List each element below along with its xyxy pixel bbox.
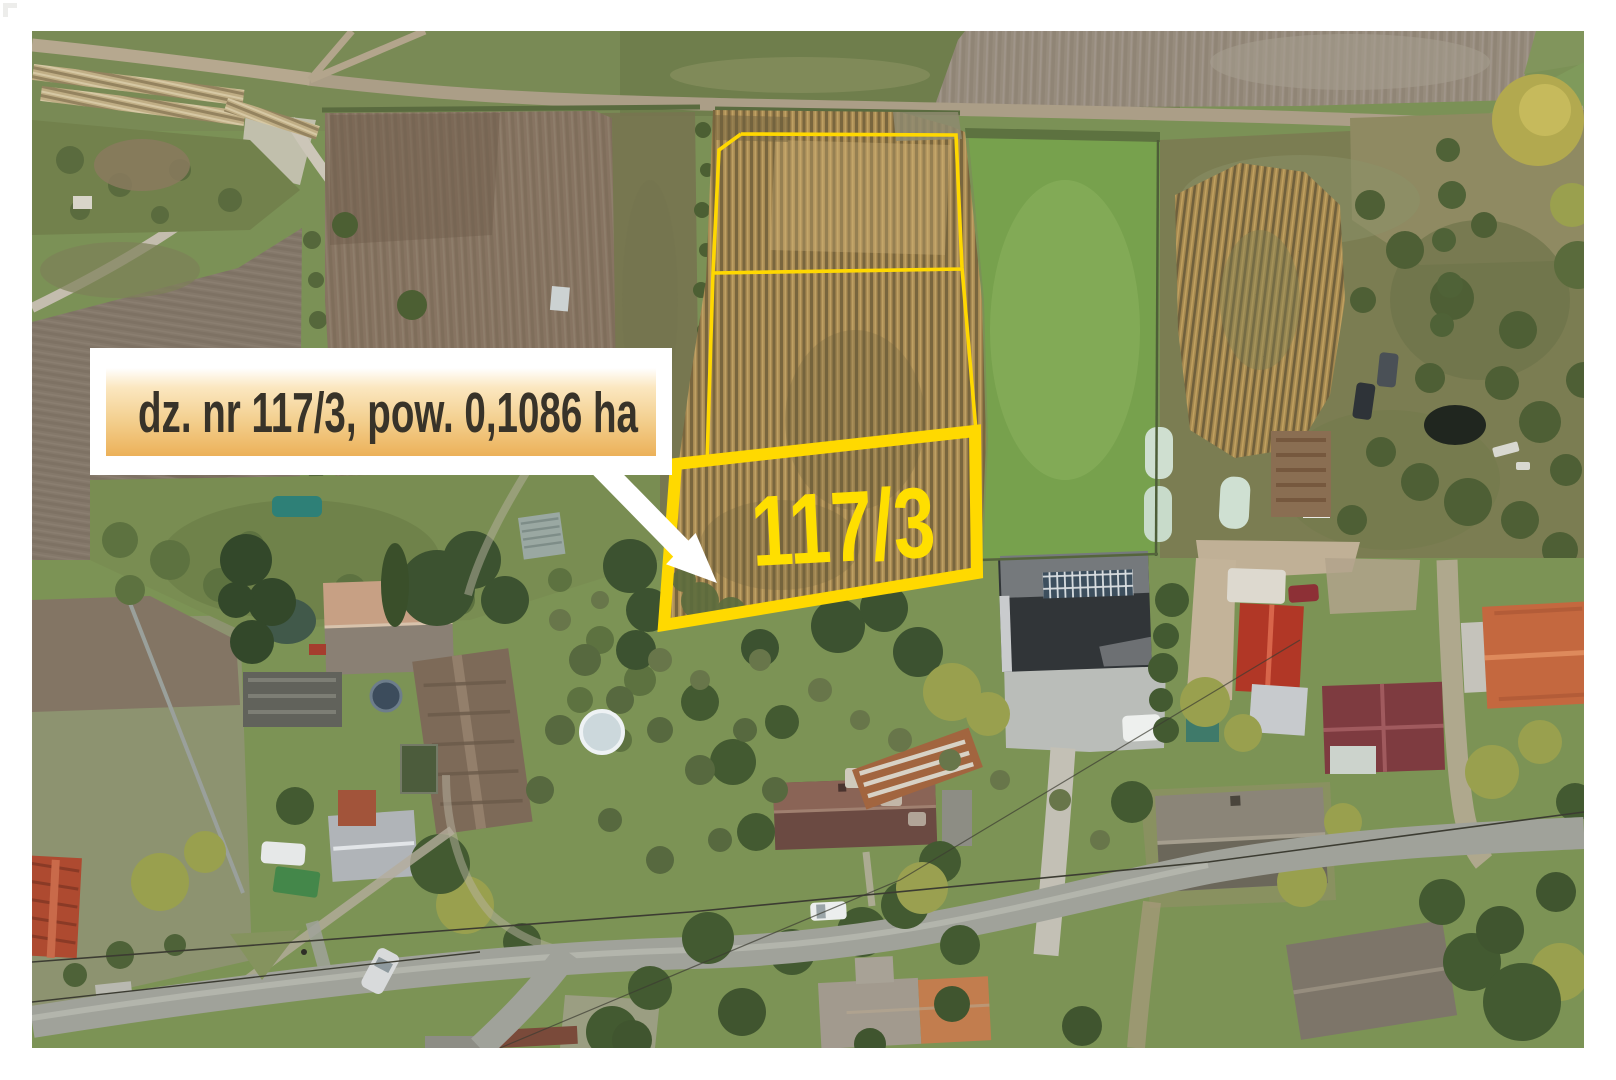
svg-text:dz. nr 117/3, pow. 0,1086 ha: dz. nr 117/3, pow. 0,1086 ha [138,381,639,445]
svg-text:117/3: 117/3 [748,466,938,587]
